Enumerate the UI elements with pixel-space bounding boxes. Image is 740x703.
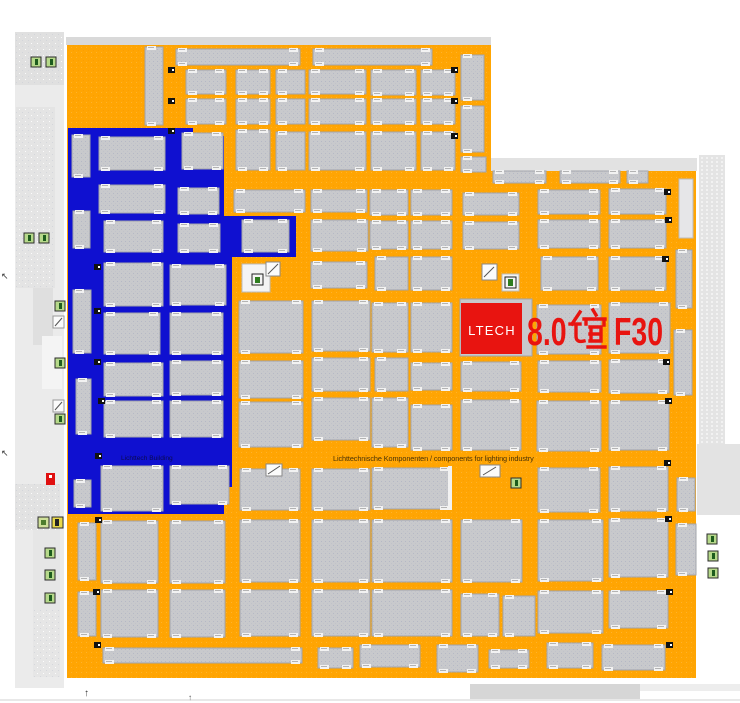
svg-text:Lichttech Building: Lichttech Building — [121, 455, 173, 462]
svg-text:F30: F30 — [614, 311, 663, 354]
svg-text:Lichttechnische Komponenten /: Lichttechnische Komponenten / components… — [333, 454, 534, 463]
svg-text:↖: ↖ — [1, 448, 9, 458]
svg-text:↑: ↑ — [188, 693, 192, 702]
svg-text:LTECH: LTECH — [468, 323, 516, 338]
svg-text:↖: ↖ — [1, 271, 9, 281]
svg-text:↑: ↑ — [84, 688, 89, 699]
svg-text:8.0: 8.0 — [527, 311, 567, 354]
